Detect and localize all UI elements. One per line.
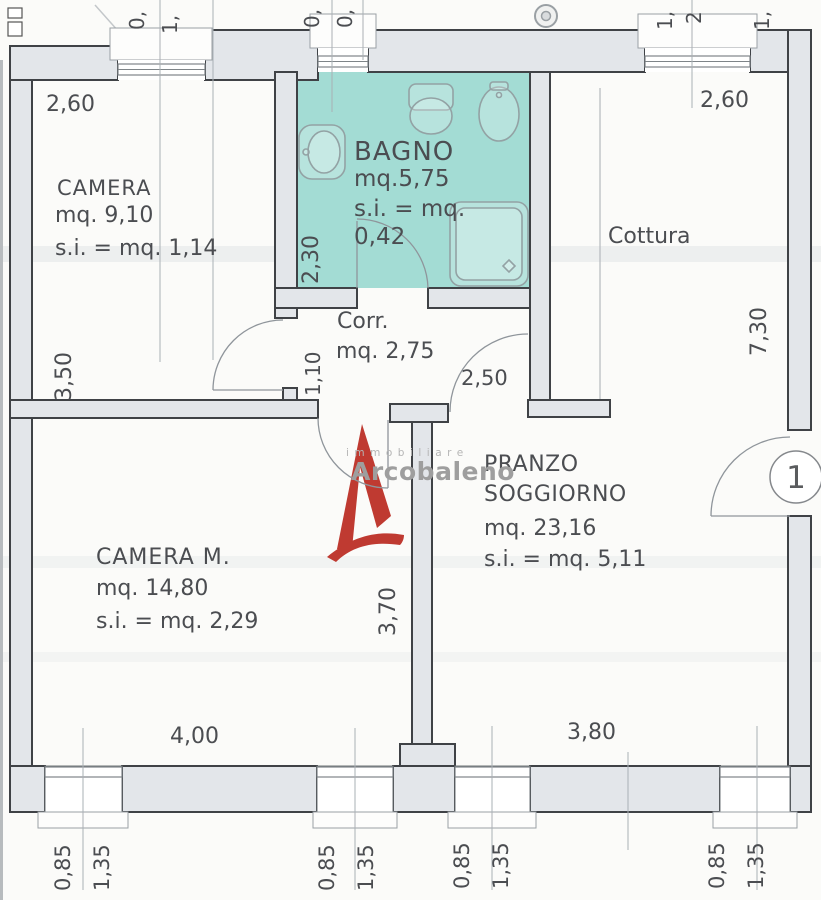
camera-name: CAMERA [57,178,152,199]
dim-pranzo-door: 2,50 [461,368,508,389]
corr-area: mq. 2,75 [336,341,434,363]
camera-m-si: s.i. = mq. 2,29 [96,611,258,633]
dim-bagno-height: 2,30 [301,235,323,284]
dim-top-cut-3: 0, [302,9,322,28]
dim-camera-m-width: 4,00 [170,726,219,748]
floor-plan: 1 CAMERA mq. 9,10 s.i. = mq. 1,14 BAGNO … [0,0,821,900]
dim-window3-a: 0,85 [452,842,473,889]
hole-punch-mark [535,5,557,27]
dim-top-cut-5: 1, [655,11,675,30]
dim-top-cut-7: 1, [752,11,772,30]
dim-window4-b: 1,35 [746,842,767,889]
sink-icon [299,125,345,179]
entry-badge: 1 [770,451,821,503]
dim-window2-a: 0,85 [317,844,338,891]
pranzo-area: mq. 23,16 [484,518,596,540]
camera-area: mq. 9,10 [55,205,153,227]
dim-camera-height: 3,50 [54,352,76,401]
corr-name: Corr. [337,311,389,333]
dim-camera-width: 2,60 [46,94,95,116]
arcobaleno-logo-mark [327,424,404,562]
bagno-area: mq.5,75 [354,168,450,191]
dim-window3-b: 1,35 [491,842,512,889]
bagno-si-line2: 0,42 [354,226,405,249]
dim-window2-b: 1,35 [356,844,377,891]
toilet-icon [409,84,453,134]
bagno-name: BAGNO [354,139,454,165]
dim-right-height: 7,30 [749,307,771,356]
pranzo-si: s.i. = mq. 5,11 [484,549,646,571]
dim-window1-b: 1,35 [92,844,113,891]
camera-m-area: mq. 14,80 [96,578,208,600]
dim-top-cut-2: 1, [160,15,180,34]
bagno-si-line1: s.i. = mq. [354,198,465,221]
dim-cottura-width: 2,60 [700,90,749,112]
camera-si: s.i. = mq. 1,14 [55,238,217,260]
dim-top-cut-6: 2 [684,11,704,24]
dim-top-cut-1: 0, [127,11,147,30]
entry-badge-number: 1 [786,460,806,496]
dim-pranzo-width: 3,80 [567,722,616,744]
dim-top-cut-4: 0, [335,9,355,28]
camera-m-name: CAMERA M. [96,547,231,569]
dim-corr-door: 1,10 [303,351,323,396]
dim-window1-a: 0,85 [53,844,74,891]
dim-pranzo-height: 3,70 [378,587,400,636]
dim-window4-a: 0,85 [707,842,728,889]
cottura-name: Cottura [608,226,691,248]
watermark-brand: Arcobaleno [351,459,515,484]
pranzo-name-line2: SOGGIORNO [484,484,627,506]
